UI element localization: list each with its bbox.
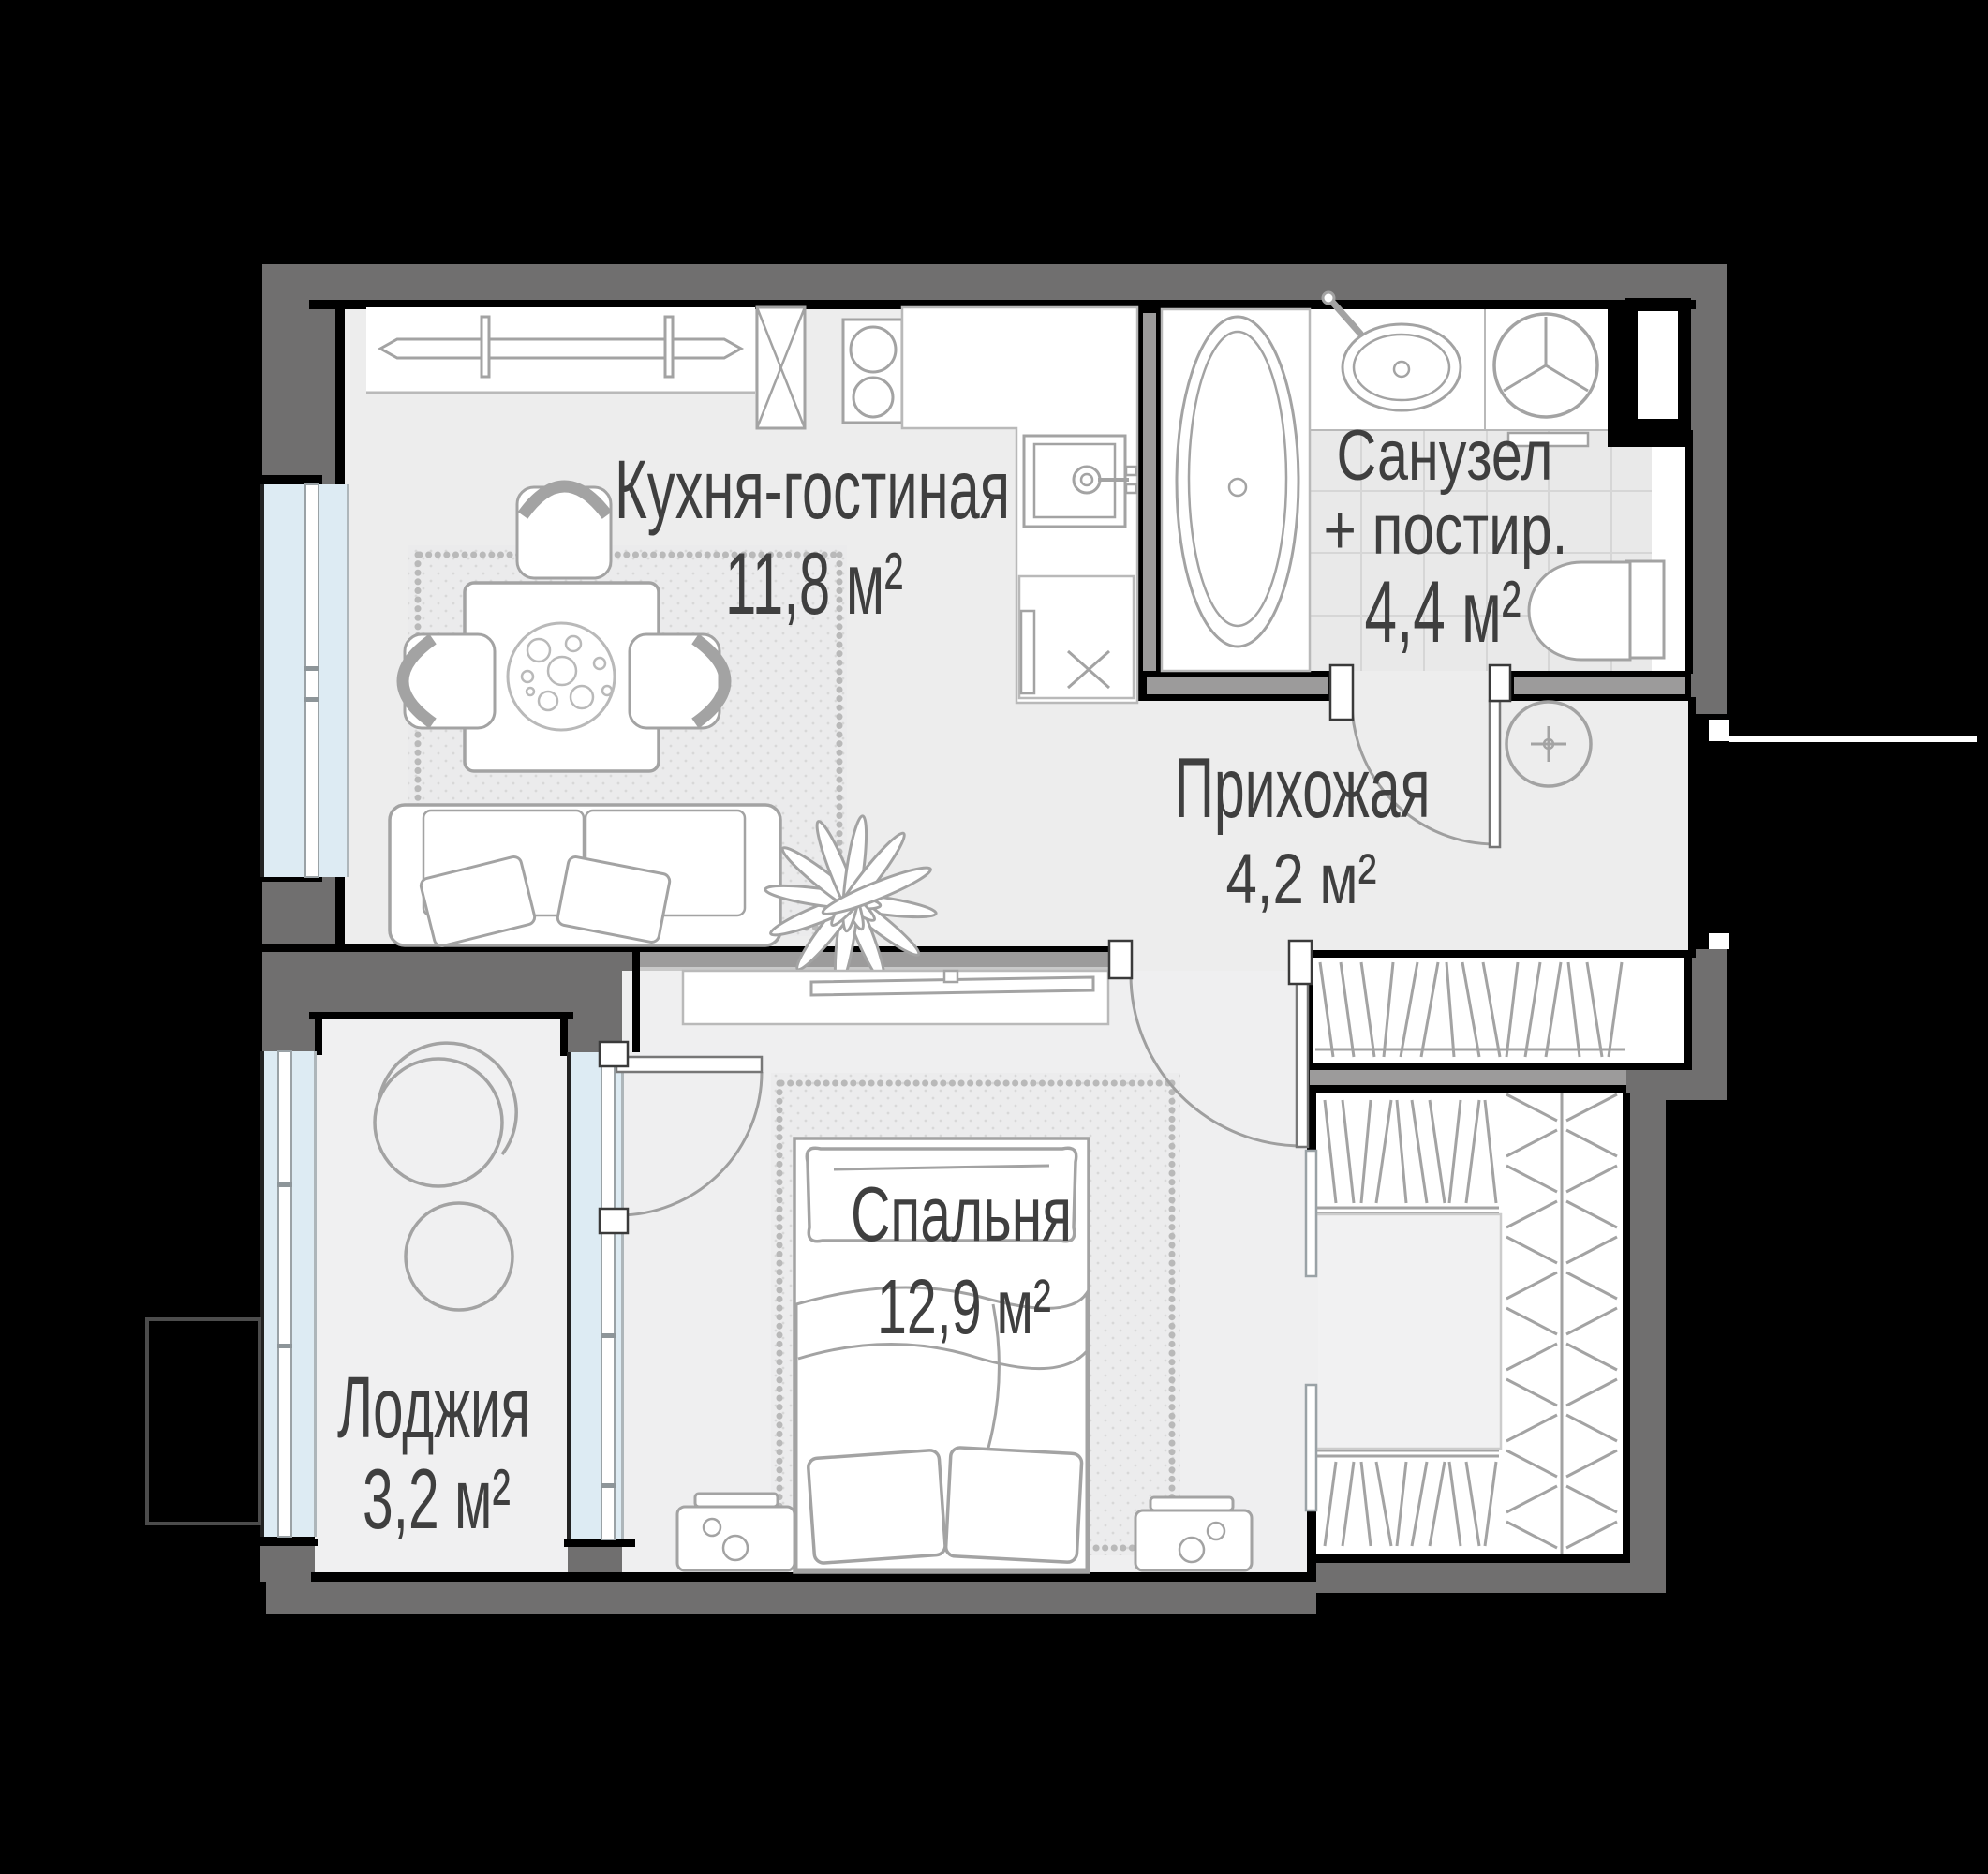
svg-text:4,4 м²: 4,4 м² <box>1365 562 1521 661</box>
svg-text:Кухня-гостиная: Кухня-гостиная <box>615 442 1010 536</box>
svg-text:12,9 м²: 12,9 м² <box>877 1263 1051 1350</box>
svg-text:4,2 м²: 4,2 м² <box>1226 840 1377 919</box>
svg-text:Санузел: Санузел <box>1337 416 1553 496</box>
svg-text:11,8 м²: 11,8 м² <box>725 534 903 632</box>
svg-text:Прихожая: Прихожая <box>1175 741 1431 836</box>
svg-text:Спальня: Спальня <box>851 1170 1072 1257</box>
svg-text:3,2 м²: 3,2 м² <box>363 1452 511 1547</box>
svg-text:+ постир.: + постир. <box>1324 490 1568 570</box>
svg-text:Лоджия: Лоджия <box>337 1359 530 1456</box>
